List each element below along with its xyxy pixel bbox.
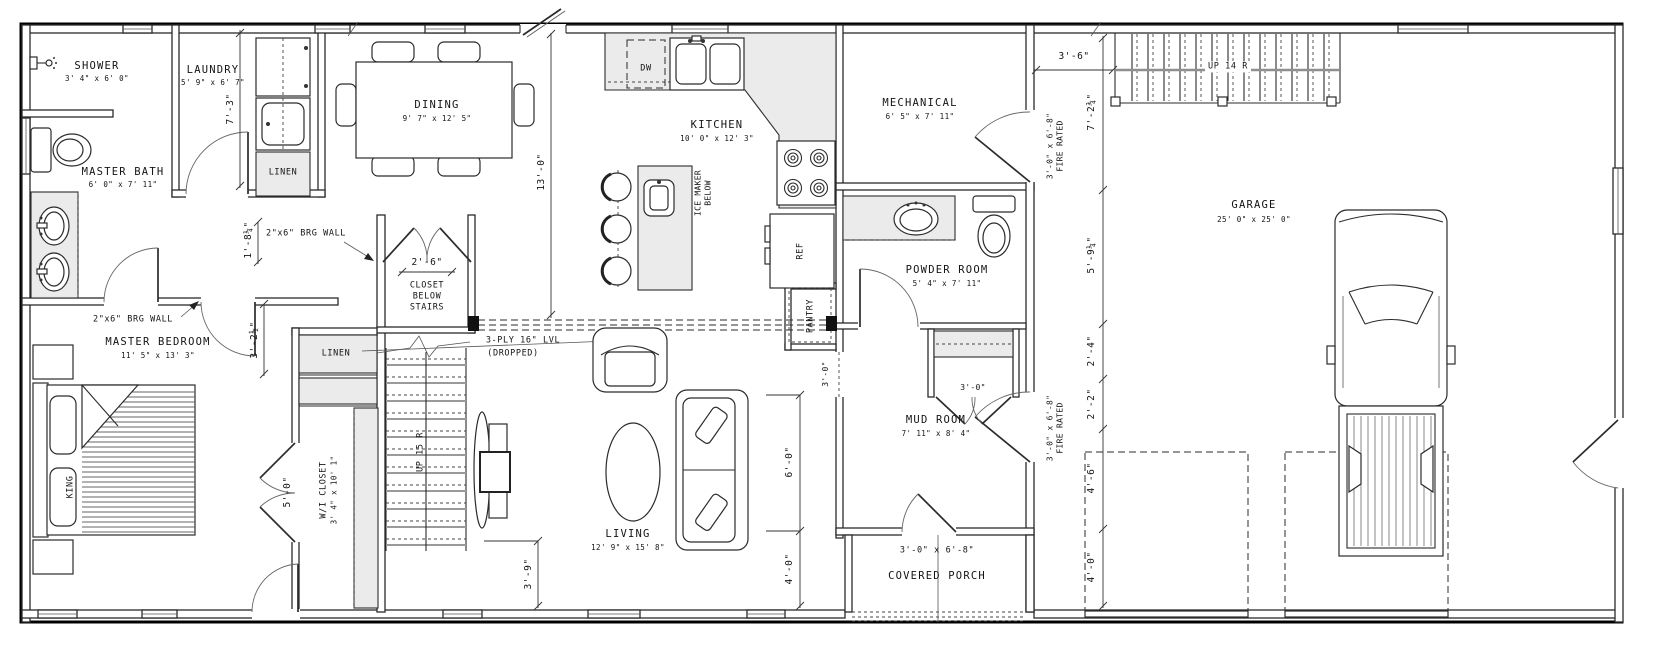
room-dims-master-bath: 6' 0" x 7' 11" (89, 180, 158, 190)
room-label-living: LIVING (605, 528, 650, 542)
label-stairs-up-14: UP 14 R (1205, 61, 1251, 72)
living-furniture (593, 328, 748, 550)
room-label-laundry: LAUNDRY (187, 64, 240, 78)
dim-hall-width: 1'-8¼" (243, 221, 255, 258)
room-dims-master-bedroom: 11' 5" x 13' 3" (121, 351, 195, 361)
room-label-closet-below-stairs: CLOSET BELOW STAIRS (410, 280, 444, 313)
dim-wi-closet-door: 5'-0" (282, 476, 294, 507)
dim-chain-4: 2'-2" (1086, 388, 1098, 419)
room-dims-mud: 7' 11" x 8' 4" (902, 429, 971, 439)
powder-fixtures (843, 196, 1015, 257)
dim-chain-3: 2'-4" (1086, 335, 1098, 366)
label-dishwasher: DW (640, 63, 651, 74)
shower-head-icon (30, 57, 57, 69)
mud-bench (934, 331, 1013, 357)
label-ice-maker: ICE MAKER BELOW (694, 170, 715, 216)
dim-chain-5: 4'-6" (1086, 462, 1098, 493)
room-dims-laundry: 5' 9" x 6' 7" (181, 78, 245, 88)
vanity-double-sink (31, 192, 78, 298)
dim-bedroom-hall: 3'-2½" (249, 321, 261, 358)
room-dims-powder: 5' 4" x 7' 11" (913, 279, 982, 289)
room-label-dining: DINING (414, 99, 459, 113)
kitchen-island (602, 166, 692, 290)
label-stairs-up-15: UP 15 R (415, 432, 426, 472)
label-king-bed: KING (65, 476, 76, 499)
note-brg-wall-mid: 2"x6" BRG WALL (266, 228, 346, 239)
room-dims-kitchen: 10' 0" x 12' 3" (680, 134, 754, 144)
dim-garage-top: 3'-6" (1058, 51, 1089, 63)
room-dims-mechanical: 6' 5" x 7' 11" (886, 112, 955, 122)
room-label-master-bath: MASTER BATH (82, 166, 165, 180)
dim-living-right-lower: 4'-0" (784, 553, 796, 584)
floor-plan: SHOWER 3' 4" x 6' 0" LAUNDRY 5' 9" x 6' … (0, 0, 1657, 660)
note-fire-door-mechanical: 3'-0" x 6'-8" FIRE RATED (1046, 113, 1067, 180)
note-brg-wall-left: 2"x6" BRG WALL (93, 314, 173, 325)
room-label-garage: GARAGE (1231, 199, 1276, 213)
label-fridge: REF (795, 242, 806, 259)
dim-kitchen-dining: 13'-0" (536, 153, 548, 190)
stove (777, 141, 835, 205)
note-lvl-line2: (DROPPED) (487, 348, 538, 359)
dim-chain-6: 4'-0" (1086, 551, 1098, 582)
note-fire-door-mud: 3'-0" x 6'-8" FIRE RATED (1046, 395, 1067, 462)
room-label-master-bedroom: MASTER BEDROOM (105, 336, 210, 350)
tv-unit (474, 412, 510, 528)
label-pantry: PANTRY (805, 299, 816, 333)
note-living-mud-opening: 3'-0" (821, 361, 831, 387)
room-dims-dining: 9' 7" x 12' 5" (403, 114, 472, 124)
label-porch-door-size: 3'-0" x 6'-8" (900, 545, 974, 556)
room-label-mechanical: MECHANICAL (882, 97, 957, 111)
room-dims-living: 12' 9" x 15' 8" (591, 543, 665, 553)
dim-closet-width: 2'-6" (411, 257, 442, 269)
dim-laundry-depth: 7'-3" (225, 93, 237, 124)
room-dims-garage: 25' 0" x 25' 0" (1217, 215, 1291, 225)
room-label-kitchen: KITCHEN (691, 119, 744, 133)
room-label-mud: MUD ROOM (906, 414, 966, 428)
truck (1327, 210, 1455, 556)
room-label-shower: SHOWER (74, 60, 119, 74)
room-label-porch: COVERED PORCH (888, 570, 986, 584)
dim-stair-offset: 3'-9" (523, 558, 535, 589)
note-mud-closet-door: 3'-0" (960, 383, 986, 393)
note-lvl-line1: 3-PLY 16" LVL (486, 335, 560, 346)
label-linen-laundry: LINEN (269, 167, 298, 178)
washer-dryer (256, 38, 310, 150)
room-label-wi-closet: W/I CLOSET 3' 4" x 10' 1" (319, 456, 340, 525)
room-label-powder: POWDER ROOM (906, 264, 989, 278)
dim-chain-2: 5'-9¼" (1086, 236, 1098, 273)
dim-living-right-upper: 6'-0" (784, 446, 796, 477)
room-dims-shower: 3' 4" x 6' 0" (65, 74, 129, 84)
label-linen-hall: LINEN (322, 348, 351, 359)
king-bed (33, 345, 195, 574)
dim-chain-1: 7'-2¾" (1086, 93, 1098, 130)
